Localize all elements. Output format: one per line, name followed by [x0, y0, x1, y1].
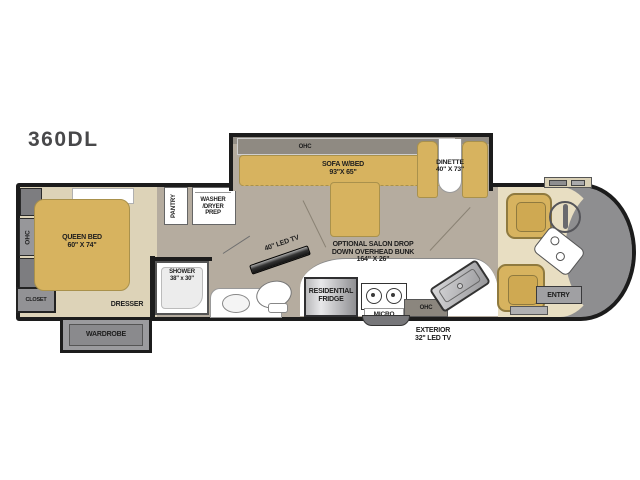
console-dial-1	[549, 235, 562, 248]
passenger-seat-cushion	[508, 275, 538, 305]
sofa-label: SOFA W/BED 93"X 65"	[283, 161, 403, 176]
queen-bed: QUEEN BED 60" X 74"	[34, 199, 130, 291]
washer-top-line	[195, 192, 231, 193]
cab-overhead-console	[544, 177, 592, 188]
entry-step-strip	[510, 306, 548, 315]
steering-column	[563, 204, 568, 229]
console-vent	[571, 180, 585, 186]
washer-label: WASHER /DRYER PREP	[193, 197, 233, 217]
exterior-tv	[362, 315, 410, 326]
fridge-label: RESIDENTIAL FRIDGE	[306, 288, 356, 303]
sofa-chaise	[330, 182, 380, 237]
wardrobe-slideout: WARDROBE	[60, 317, 152, 353]
pantry-label: PANTRY	[171, 194, 177, 218]
queen-bed-label: QUEEN BED 60" X 74"	[35, 234, 129, 249]
entry-label: ENTRY	[537, 292, 580, 300]
console-dial-2	[554, 250, 567, 263]
burner-left	[366, 288, 382, 304]
dinette-label: DINETTE 40" X 73"	[405, 159, 495, 174]
wardrobe-label: WARDROBE	[63, 331, 149, 339]
console-screen	[549, 180, 567, 186]
vanity-sink	[222, 294, 250, 313]
bedroom-ohc-label: OHC	[25, 230, 32, 244]
sofa-dinette-slideout: OHC SOFA W/BED 93"X 65" DINETTE 40" X 73…	[229, 133, 493, 191]
toilet-base	[268, 303, 288, 313]
page-title: 360DL	[28, 128, 99, 152]
exterior-tv-label: EXTERIOR 32" LED TV	[396, 327, 470, 342]
pantry: PANTRY	[164, 187, 188, 225]
closet-label: CLOSET	[18, 297, 54, 303]
overhead-bunk-label: OPTIONAL SALON DROP DOWN OVERHEAD BUNK 1…	[312, 241, 434, 264]
sofa-ohc-label: OHC	[290, 144, 320, 151]
floorplan-360dl: 360DL OHC CLOSET QUEEN BED 60" X 74" DRE…	[0, 0, 640, 480]
shower: SHOWER 38" x 30"	[155, 261, 209, 315]
entry-steps: ENTRY	[536, 286, 582, 304]
burner-right	[386, 288, 402, 304]
shower-label: SHOWER 38" x 30"	[157, 269, 207, 282]
washer-dryer-prep: WASHER /DRYER PREP	[192, 187, 236, 225]
cooktop	[361, 283, 407, 310]
driver-seat-cushion	[516, 202, 546, 232]
residential-fridge: RESIDENTIAL FRIDGE	[304, 277, 358, 317]
